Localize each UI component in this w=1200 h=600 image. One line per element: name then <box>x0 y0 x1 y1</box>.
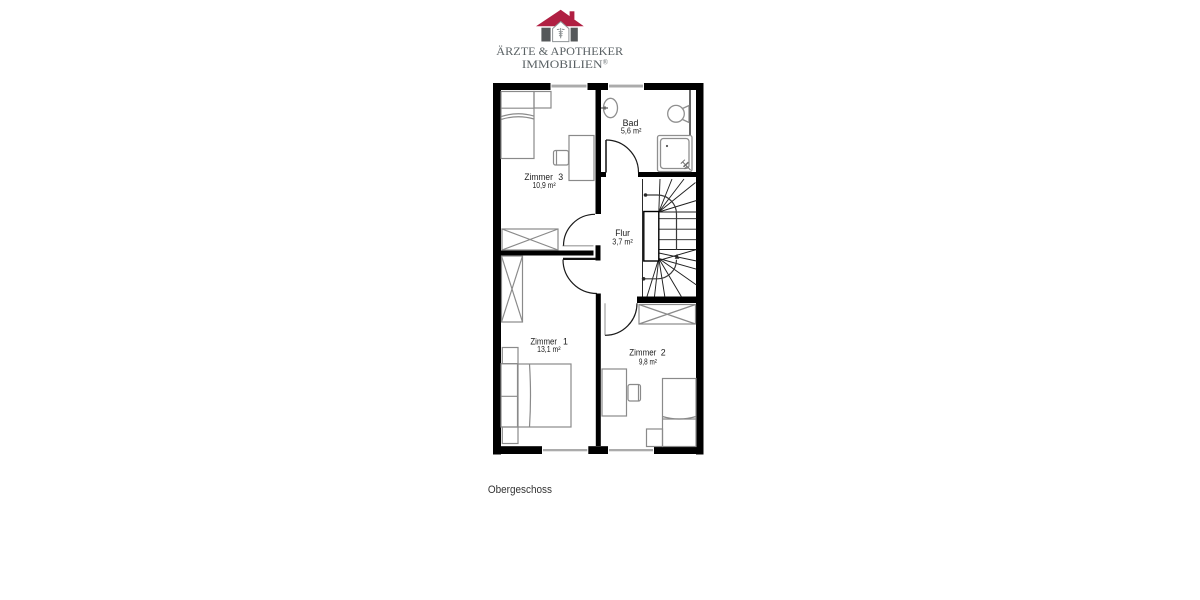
svg-text:Obergeschoss: Obergeschoss <box>488 484 552 496</box>
svg-text:13,1 m²: 13,1 m² <box>537 345 561 354</box>
svg-text:3,7 m²: 3,7 m² <box>612 238 633 247</box>
svg-text:Flur: Flur <box>615 228 630 238</box>
svg-text:5,6 m²: 5,6 m² <box>621 127 642 136</box>
svg-text:Zimmer: Zimmer <box>629 348 656 358</box>
svg-text:IMMOBILIEN: IMMOBILIEN <box>522 59 603 71</box>
svg-text:9,8 m²: 9,8 m² <box>639 358 657 367</box>
svg-text:1: 1 <box>563 336 568 346</box>
svg-text:3: 3 <box>558 172 563 182</box>
svg-text:ÄRZTE & APOTHEKER: ÄRZTE & APOTHEKER <box>496 46 623 58</box>
svg-text:10,9 m²: 10,9 m² <box>533 181 556 190</box>
svg-text:®: ® <box>603 59 608 66</box>
svg-text:2: 2 <box>661 348 666 358</box>
